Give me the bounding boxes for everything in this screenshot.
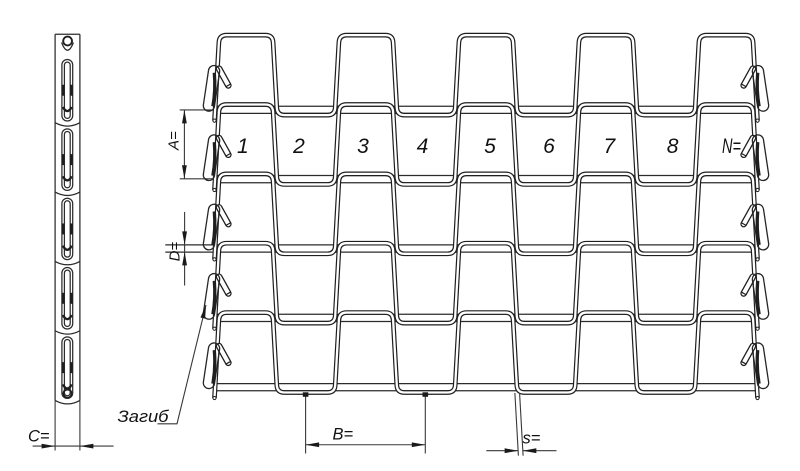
svg-text:Загиб: Загиб xyxy=(118,407,171,426)
svg-text:7: 7 xyxy=(603,135,616,158)
svg-text:D=: D= xyxy=(167,242,184,262)
svg-text:5: 5 xyxy=(484,135,496,158)
svg-text:3: 3 xyxy=(357,135,369,158)
svg-text:4: 4 xyxy=(417,135,429,158)
svg-text:s=: s= xyxy=(523,430,541,448)
svg-text:8: 8 xyxy=(667,135,679,158)
svg-text:C=: C= xyxy=(28,427,50,445)
svg-text:B=: B= xyxy=(333,426,354,444)
svg-text:2: 2 xyxy=(292,135,305,158)
svg-text:A=: A= xyxy=(166,131,183,151)
svg-text:N=: N= xyxy=(722,135,741,158)
svg-text:1: 1 xyxy=(237,135,249,158)
svg-text:6: 6 xyxy=(543,135,555,158)
